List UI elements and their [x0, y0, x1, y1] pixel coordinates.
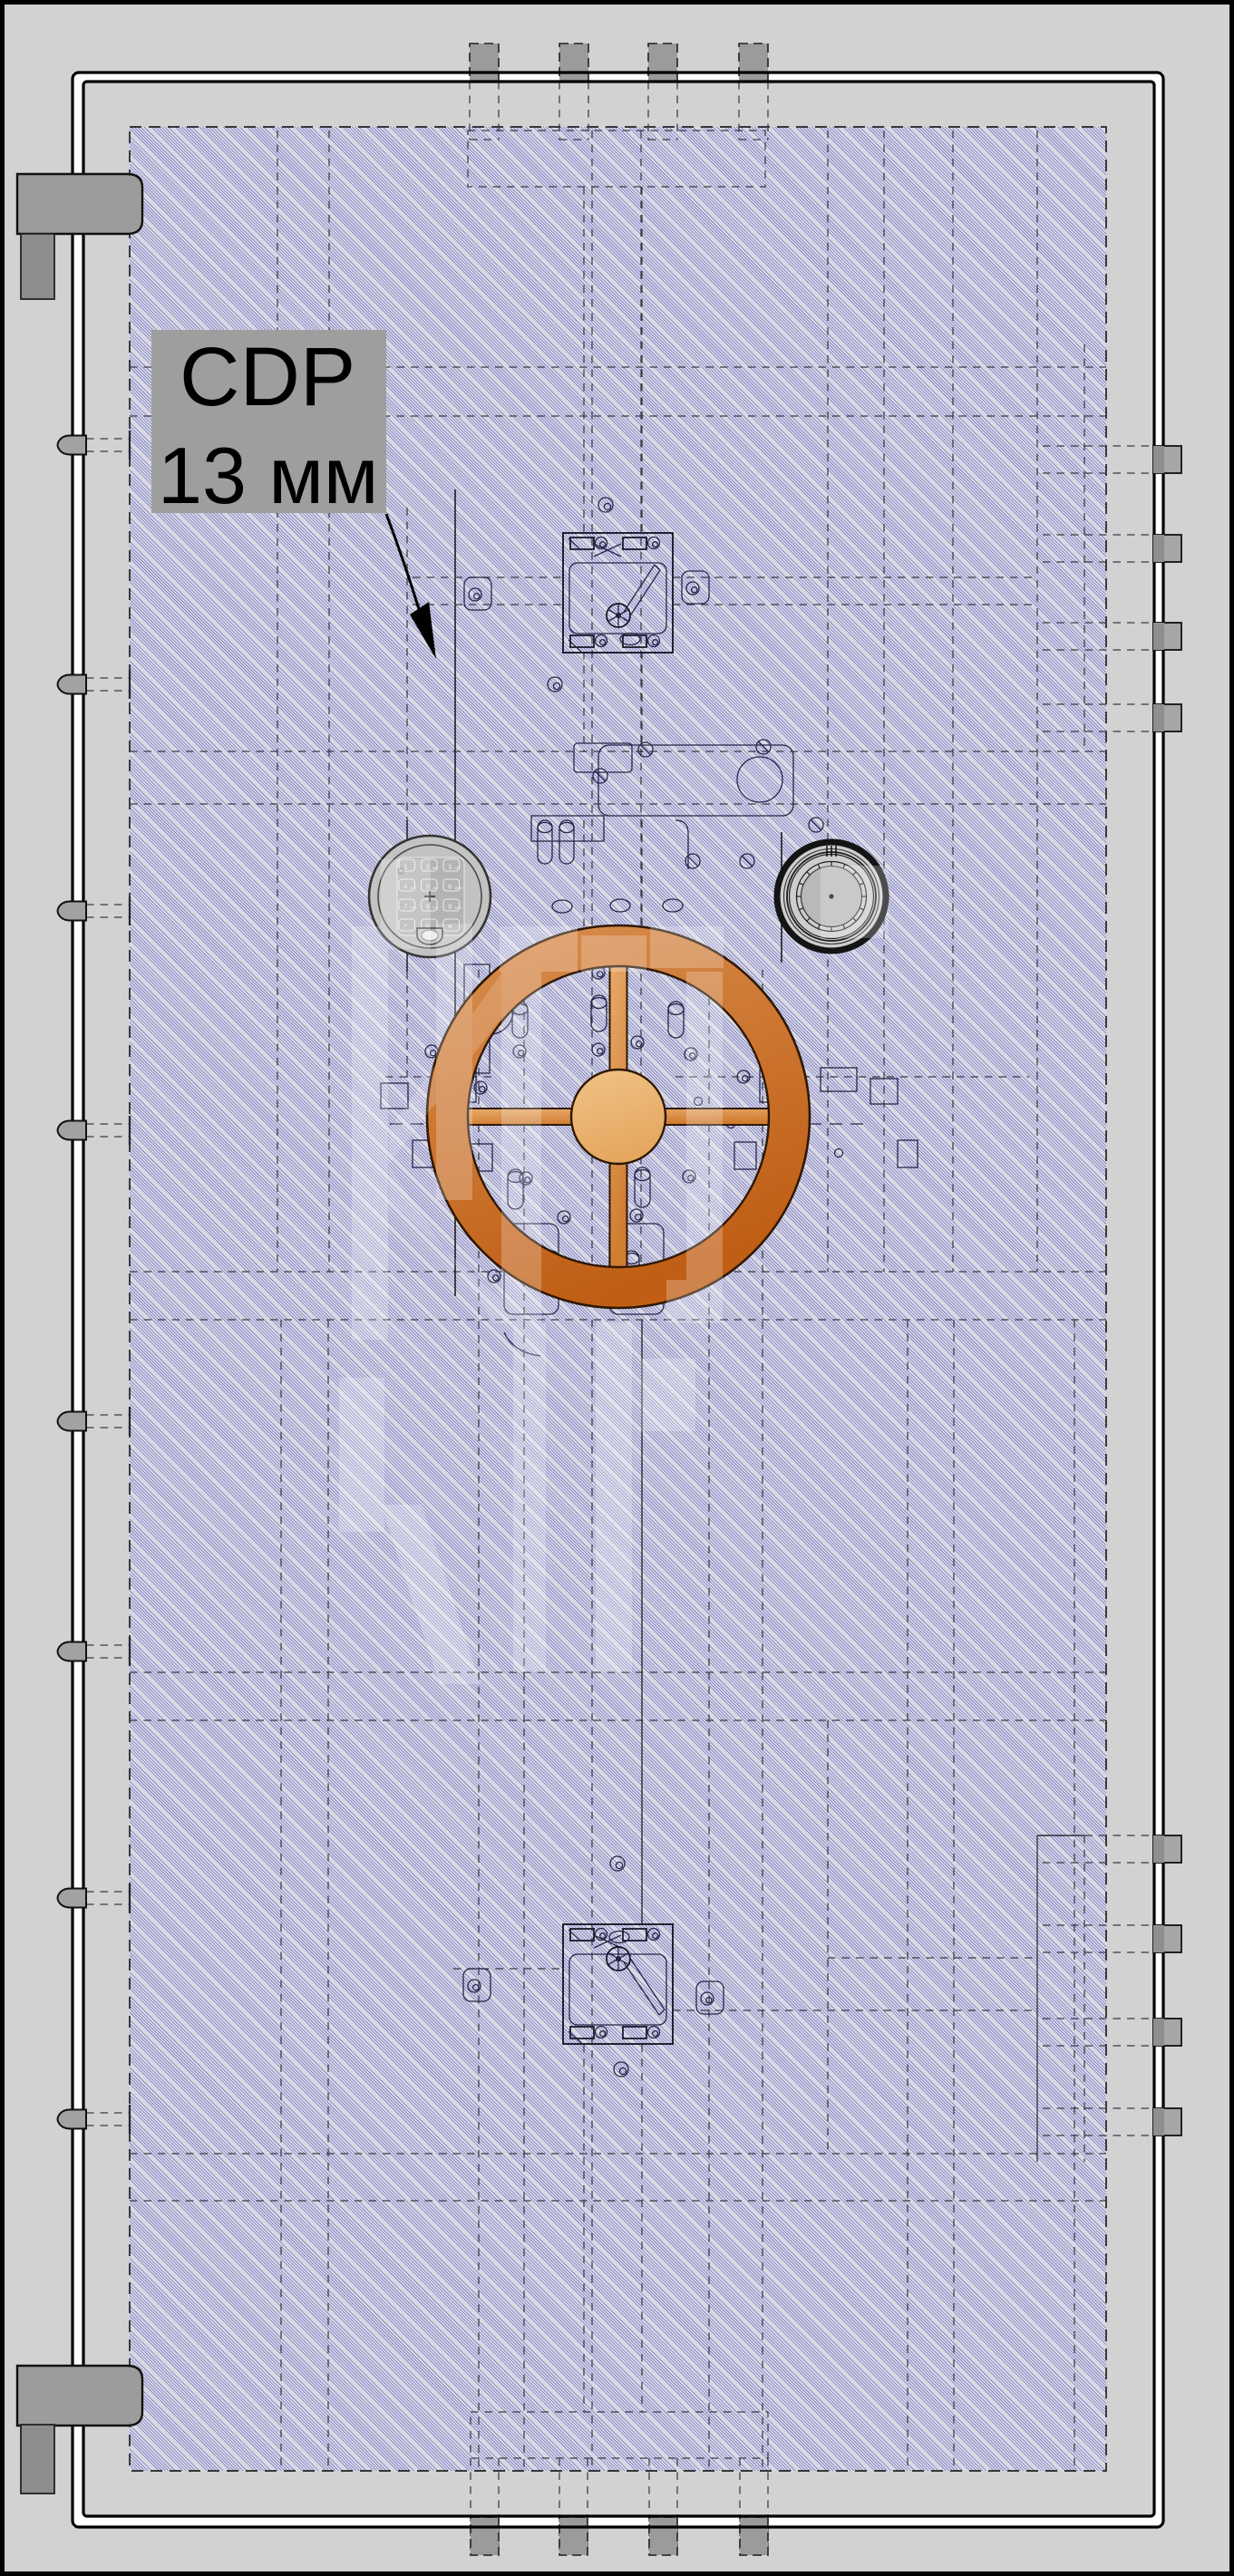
svg-text:9: 9 [448, 903, 452, 911]
svg-text:MNO: MNO [454, 886, 462, 890]
svg-text:JKL: JKL [432, 886, 438, 890]
svg-text:13 мм: 13 мм [158, 431, 378, 520]
svg-text:6: 6 [448, 883, 452, 891]
svg-text:DEF: DEF [454, 867, 462, 870]
svg-text:3: 3 [448, 863, 452, 871]
svg-text:ABC: ABC [432, 867, 440, 870]
svg-text:TUV: TUV [432, 906, 440, 910]
svg-text:WXY: WXY [454, 906, 462, 910]
svg-text:CDP: CDP [180, 331, 355, 423]
